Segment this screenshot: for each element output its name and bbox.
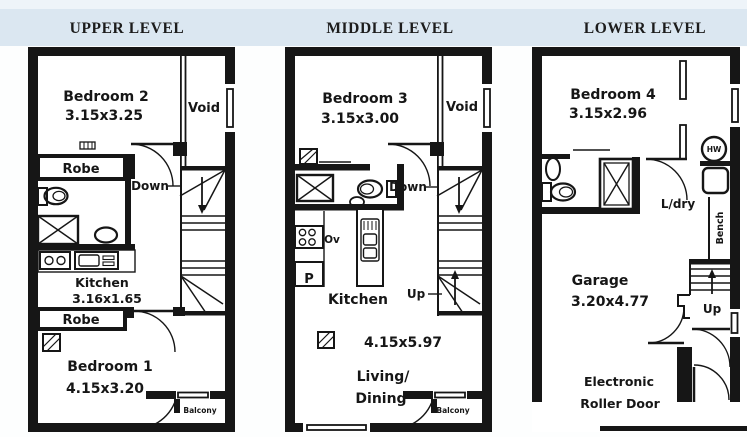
- upper-void-label: Void: [188, 101, 220, 116]
- upper-bedroom2-label: Bedroom 2: [63, 89, 149, 105]
- oven-icon: [75, 252, 118, 269]
- middle-living-dims: 4.15x5.97: [364, 335, 442, 351]
- balcony-window: [435, 393, 465, 398]
- middle-right-window: [484, 89, 490, 127]
- upper-bedroom2-dims: 3.15x3.25: [65, 108, 143, 124]
- entry-side-window: [732, 313, 738, 333]
- top-band-highlight: [0, 0, 747, 9]
- upper-level-title: UPPER LEVEL: [70, 20, 185, 38]
- upper-bedroom1-label: Bedroom 1: [67, 359, 153, 375]
- middle-down-label: Down: [389, 180, 427, 194]
- shower-icon: [600, 159, 633, 209]
- middle-bedroom3-label: Bedroom 3: [322, 91, 408, 107]
- lower-bedroom4-dims: 3.15x2.96: [569, 106, 647, 122]
- island-sink-icon: [357, 209, 383, 286]
- upper-down-label: Down: [131, 179, 169, 193]
- lower-level-title: LOWER LEVEL: [584, 20, 706, 38]
- laundry-label: L/dry: [661, 197, 696, 211]
- oven-label: Ov: [324, 234, 340, 246]
- middle-balcony-label: Balcony: [436, 406, 469, 415]
- smoke-detector-icon: [43, 334, 60, 351]
- upper-level-plan: Robe: [28, 47, 235, 432]
- middle-void-label: Void: [446, 100, 478, 115]
- roller-door-label-1: Electronic: [584, 374, 654, 389]
- cooktop-icon: [295, 226, 323, 248]
- middle-bottom-window: [307, 425, 366, 430]
- lower-up-label: Up: [703, 302, 722, 316]
- balcony-window: [178, 393, 208, 398]
- upper-bedroom1-dims: 4.15x3.20: [66, 381, 144, 397]
- pantry-label: P: [304, 272, 314, 287]
- garage-dims: 3.20x4.77: [571, 294, 649, 310]
- upper-robe-top-label: Robe: [62, 162, 99, 177]
- upper-kitchen-dims: 3.16x1.65: [72, 291, 142, 306]
- shower-icon: [38, 216, 78, 244]
- pantry: P: [295, 262, 323, 287]
- hw-label: HW: [707, 145, 722, 154]
- lower-bedroom4-label: Bedroom 4: [570, 87, 656, 103]
- middle-level-plan: Ov P Kitchen: [285, 47, 492, 432]
- roller-door-label-2: Roller Door: [580, 396, 660, 411]
- garage-label: Garage: [572, 273, 629, 289]
- middle-kitchen-label: Kitchen: [328, 292, 388, 308]
- middle-living-label-2: Dining: [355, 391, 406, 407]
- middle-living-label-1: Living/: [357, 369, 411, 385]
- middle-bedroom3-dims: 3.15x3.00: [321, 111, 399, 127]
- bench-edge: [708, 197, 710, 259]
- shower-icon: [297, 175, 333, 201]
- middle-up-label: Up: [407, 287, 426, 301]
- upper-robe-bottom-label: Robe: [62, 313, 99, 328]
- lower-level-plan: HW Bench L/dry Up: [532, 47, 747, 432]
- upper-right-window: [227, 89, 233, 127]
- upper-robe-bottom: Robe: [38, 309, 125, 329]
- lower-right-window: [732, 89, 738, 122]
- middle-level-title: MIDDLE LEVEL: [326, 20, 453, 38]
- smoke-detector-icon-living: [318, 332, 334, 348]
- bench-label: Bench: [715, 211, 726, 244]
- cooktop-icon: [40, 252, 70, 269]
- upper-balcony-label: Balcony: [183, 406, 216, 415]
- upper-kitchen-label: Kitchen: [75, 275, 129, 290]
- roller-door-line: [600, 426, 747, 431]
- floorplan-sheet: UPPER LEVEL MIDDLE LEVEL LOWER LEVEL: [0, 0, 747, 437]
